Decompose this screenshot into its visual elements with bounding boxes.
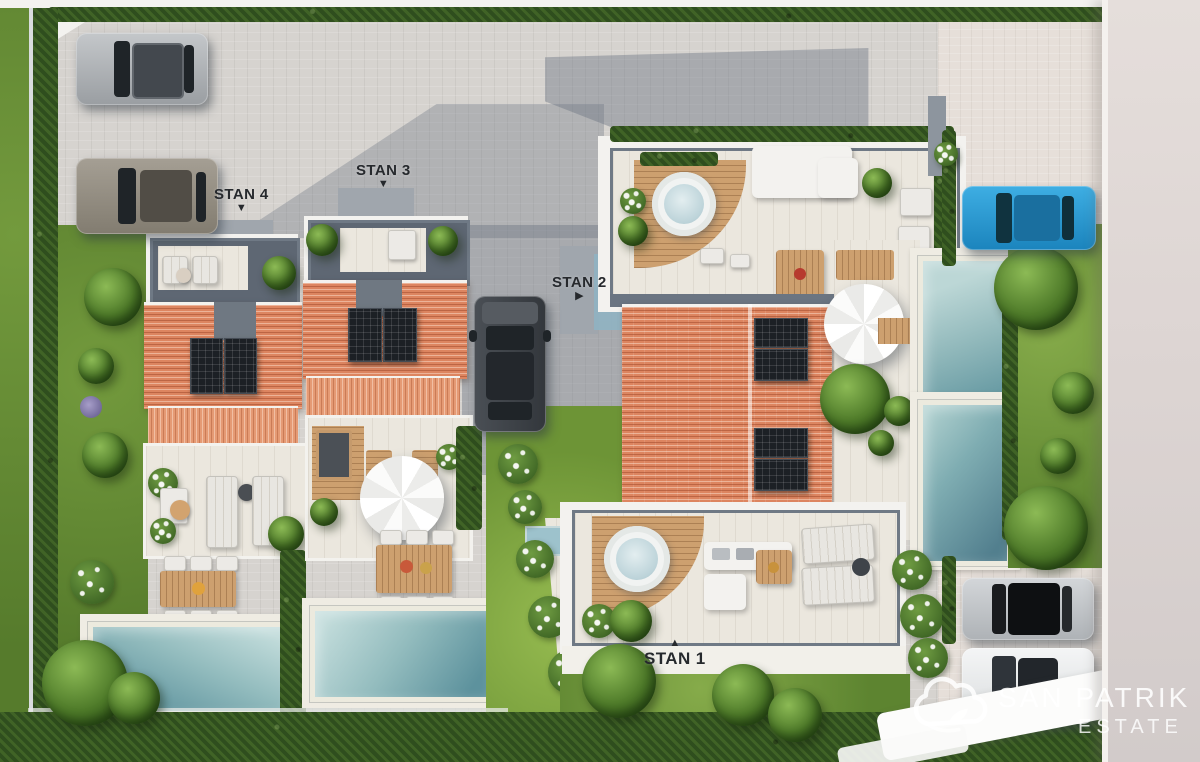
san-patrik-logo-icon <box>900 654 992 750</box>
car-gray-sedan <box>76 158 218 234</box>
lounger <box>206 476 238 548</box>
flower-bush <box>70 560 114 604</box>
bench <box>836 250 894 280</box>
seat-pouf <box>700 248 724 264</box>
hedge-top <box>48 7 1106 22</box>
bush <box>1052 372 1094 414</box>
hedge-terrace-top <box>610 126 954 142</box>
decor-plate <box>400 560 413 573</box>
lower-roof-stan4 <box>148 406 298 450</box>
tree <box>108 672 160 724</box>
tree <box>610 600 652 642</box>
flower-bush <box>620 188 646 214</box>
fire-bowl <box>852 558 870 576</box>
chair <box>190 556 212 571</box>
flower-bush <box>516 540 554 578</box>
tree <box>310 498 338 526</box>
watermark-tagline: ESTATE <box>1078 716 1183 739</box>
marker-down-icon: ▼ <box>214 203 269 214</box>
hedge-parking <box>942 556 956 644</box>
unit-label-text: STAN 2 <box>552 274 607 291</box>
tree <box>712 664 774 726</box>
tree <box>618 216 648 246</box>
marker-up-icon: ▲ <box>644 638 706 649</box>
outdoor-kitchen <box>316 430 352 480</box>
decor-bowl <box>768 562 779 573</box>
flower-bush <box>900 594 944 638</box>
grass-left-strip <box>0 8 32 762</box>
tree <box>78 348 114 384</box>
decor-bowl <box>794 268 806 280</box>
hot-tub-water <box>616 538 658 580</box>
roof-ridge <box>748 304 752 508</box>
round-table <box>170 500 190 520</box>
entry-pad-stan3 <box>338 188 414 218</box>
solar-panel <box>348 308 382 362</box>
planter <box>640 152 718 166</box>
flower-bush <box>498 444 538 484</box>
hot-tub-water <box>664 184 704 224</box>
solar-panel <box>383 308 417 362</box>
solar-panel <box>224 338 257 394</box>
roof-stan4-stairwell <box>214 302 256 340</box>
lounger <box>192 256 218 284</box>
hedge-divider <box>456 426 482 530</box>
flower-bush <box>934 142 958 166</box>
car-dark-center <box>474 296 546 432</box>
pool-stan3 <box>310 606 494 702</box>
tree <box>994 246 1078 330</box>
unit-label-stan4: STAN 4 ▼ <box>214 186 269 214</box>
tree <box>820 364 890 434</box>
marker-down-icon: ▼ <box>356 179 411 190</box>
aerial-render-scene: STAN 4 ▼ STAN 3 ▼ STAN 2 ▶ ▲ STAN 1 SAN … <box>0 0 1200 762</box>
car-silver-black-roof <box>962 578 1094 640</box>
unit-label-text: STAN 3 <box>356 162 411 179</box>
watermark-brand: SAN PATRIK <box>998 682 1190 714</box>
chair <box>406 530 428 545</box>
car-blue <box>962 186 1096 250</box>
fruit-bowl <box>192 582 205 595</box>
outdoor-chaise <box>818 158 858 198</box>
chair <box>216 556 238 571</box>
unit-label-text: STAN 4 <box>214 186 269 203</box>
marker-right-icon: ▶ <box>552 291 607 302</box>
unit-label-stan3: STAN 3 ▼ <box>356 162 411 190</box>
solar-panel <box>754 459 808 491</box>
solar-panel <box>754 318 808 348</box>
ornamental-plant <box>80 396 102 418</box>
car-silver-suv <box>76 33 208 105</box>
flower-bush <box>508 490 542 524</box>
bistro-table <box>176 268 191 283</box>
tree <box>268 516 304 552</box>
tree <box>82 432 128 478</box>
watermark: SAN PATRIK ESTATE <box>900 650 1200 760</box>
chair <box>164 556 186 571</box>
fruit-bowl <box>420 562 432 574</box>
potted-plant <box>862 168 892 198</box>
seat-pouf <box>730 254 750 268</box>
parasol <box>360 456 444 540</box>
unit-label-stan1: ▲ STAN 1 <box>644 638 706 669</box>
hedge-left <box>33 8 58 762</box>
cushion <box>736 548 754 560</box>
tree <box>768 688 822 742</box>
tree <box>262 256 296 290</box>
solar-panel <box>754 349 808 381</box>
unit-label-text: STAN 1 <box>644 649 706 669</box>
tree <box>84 268 142 326</box>
tree <box>428 226 458 256</box>
flower-bush <box>892 550 932 590</box>
bush <box>1040 438 1076 474</box>
chair <box>380 530 402 545</box>
solar-panel <box>190 338 223 394</box>
bush <box>868 430 894 456</box>
pool-right-lower <box>918 400 1012 566</box>
outdoor-sofa <box>704 574 746 610</box>
neighbour-strip <box>1102 0 1200 762</box>
flower-bush <box>150 518 176 544</box>
cushion <box>712 548 730 560</box>
solar-panel <box>754 428 808 458</box>
tree <box>1004 486 1088 570</box>
unit-label-stan2: STAN 2 ▶ <box>552 274 607 302</box>
armchair <box>900 188 932 216</box>
dining-table <box>376 545 452 593</box>
chair <box>432 530 454 545</box>
armchair <box>388 230 416 260</box>
tree <box>306 224 338 256</box>
